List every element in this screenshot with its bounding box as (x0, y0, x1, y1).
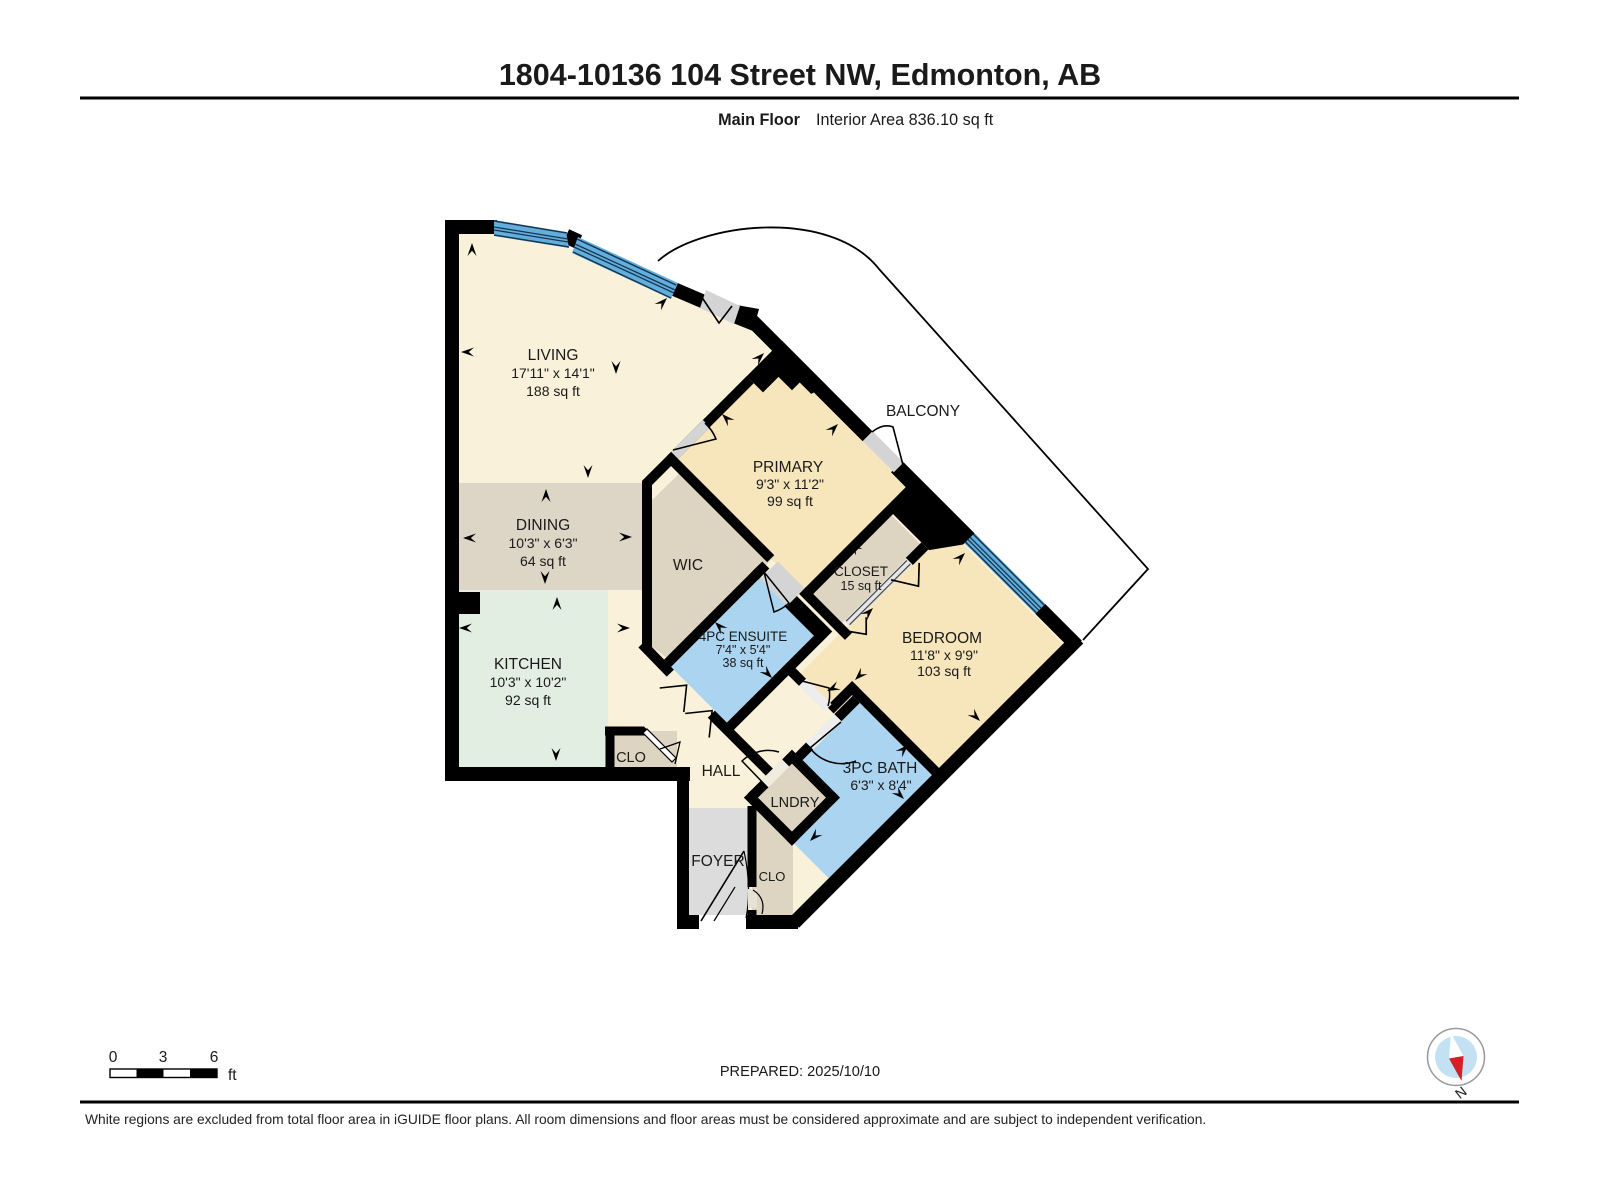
svg-text:38 sq ft: 38 sq ft (723, 656, 765, 670)
svg-text:6: 6 (210, 1049, 219, 1066)
svg-text:CLO: CLO (759, 869, 786, 884)
svg-text:99 sq ft: 99 sq ft (767, 493, 813, 509)
svg-text:BALCONY: BALCONY (886, 403, 960, 420)
svg-text:10'3" x 6'3": 10'3" x 6'3" (509, 535, 578, 551)
svg-text:CLO: CLO (616, 750, 646, 766)
svg-text:103 sq ft: 103 sq ft (917, 663, 971, 679)
svg-text:DINING: DINING (516, 517, 570, 534)
svg-text:17'11" x 14'1": 17'11" x 14'1" (511, 365, 595, 381)
svg-text:10'3" x 10'2": 10'3" x 10'2" (490, 674, 567, 690)
svg-text:BEDROOM: BEDROOM (902, 630, 982, 647)
svg-text:White regions are excluded fro: White regions are excluded from total fl… (85, 1112, 1206, 1127)
svg-text:9'3" x 11'2": 9'3" x 11'2" (756, 476, 824, 492)
svg-text:7'4" x 5'4": 7'4" x 5'4" (716, 643, 771, 657)
svg-text:KITCHEN: KITCHEN (494, 656, 562, 673)
svg-text:1804-10136 104 Street NW, Edmo: 1804-10136 104 Street NW, Edmonton, AB (499, 58, 1101, 92)
svg-text:4PC ENSUITE: 4PC ENSUITE (699, 629, 788, 644)
svg-text:Interior Area 836.10 sq ft: Interior Area 836.10 sq ft (816, 111, 994, 129)
svg-text:15 sq ft: 15 sq ft (841, 579, 883, 593)
svg-text:LIVING: LIVING (528, 347, 579, 364)
svg-text:LNDRY: LNDRY (771, 795, 820, 811)
svg-text:3: 3 (159, 1049, 168, 1066)
svg-text:FOYER: FOYER (691, 853, 744, 870)
svg-text:188 sq ft: 188 sq ft (526, 383, 580, 399)
svg-text:ft: ft (228, 1067, 237, 1084)
svg-text:92 sq ft: 92 sq ft (505, 692, 551, 708)
svg-text:64 sq ft: 64 sq ft (520, 553, 566, 569)
svg-text:CLOSET: CLOSET (834, 564, 888, 579)
svg-text:Main Floor: Main Floor (718, 111, 801, 129)
svg-text:3PC BATH: 3PC BATH (843, 760, 918, 777)
svg-text:0: 0 (109, 1049, 118, 1066)
svg-text:PRIMARY: PRIMARY (753, 459, 823, 476)
svg-text:6'3" x 8'4": 6'3" x 8'4" (850, 777, 911, 793)
svg-text:11'8" x 9'9": 11'8" x 9'9" (910, 647, 978, 663)
svg-text:HALL: HALL (702, 763, 741, 780)
svg-text:PREPARED: 2025/10/10: PREPARED: 2025/10/10 (720, 1064, 880, 1080)
svg-text:WIC: WIC (673, 557, 703, 574)
